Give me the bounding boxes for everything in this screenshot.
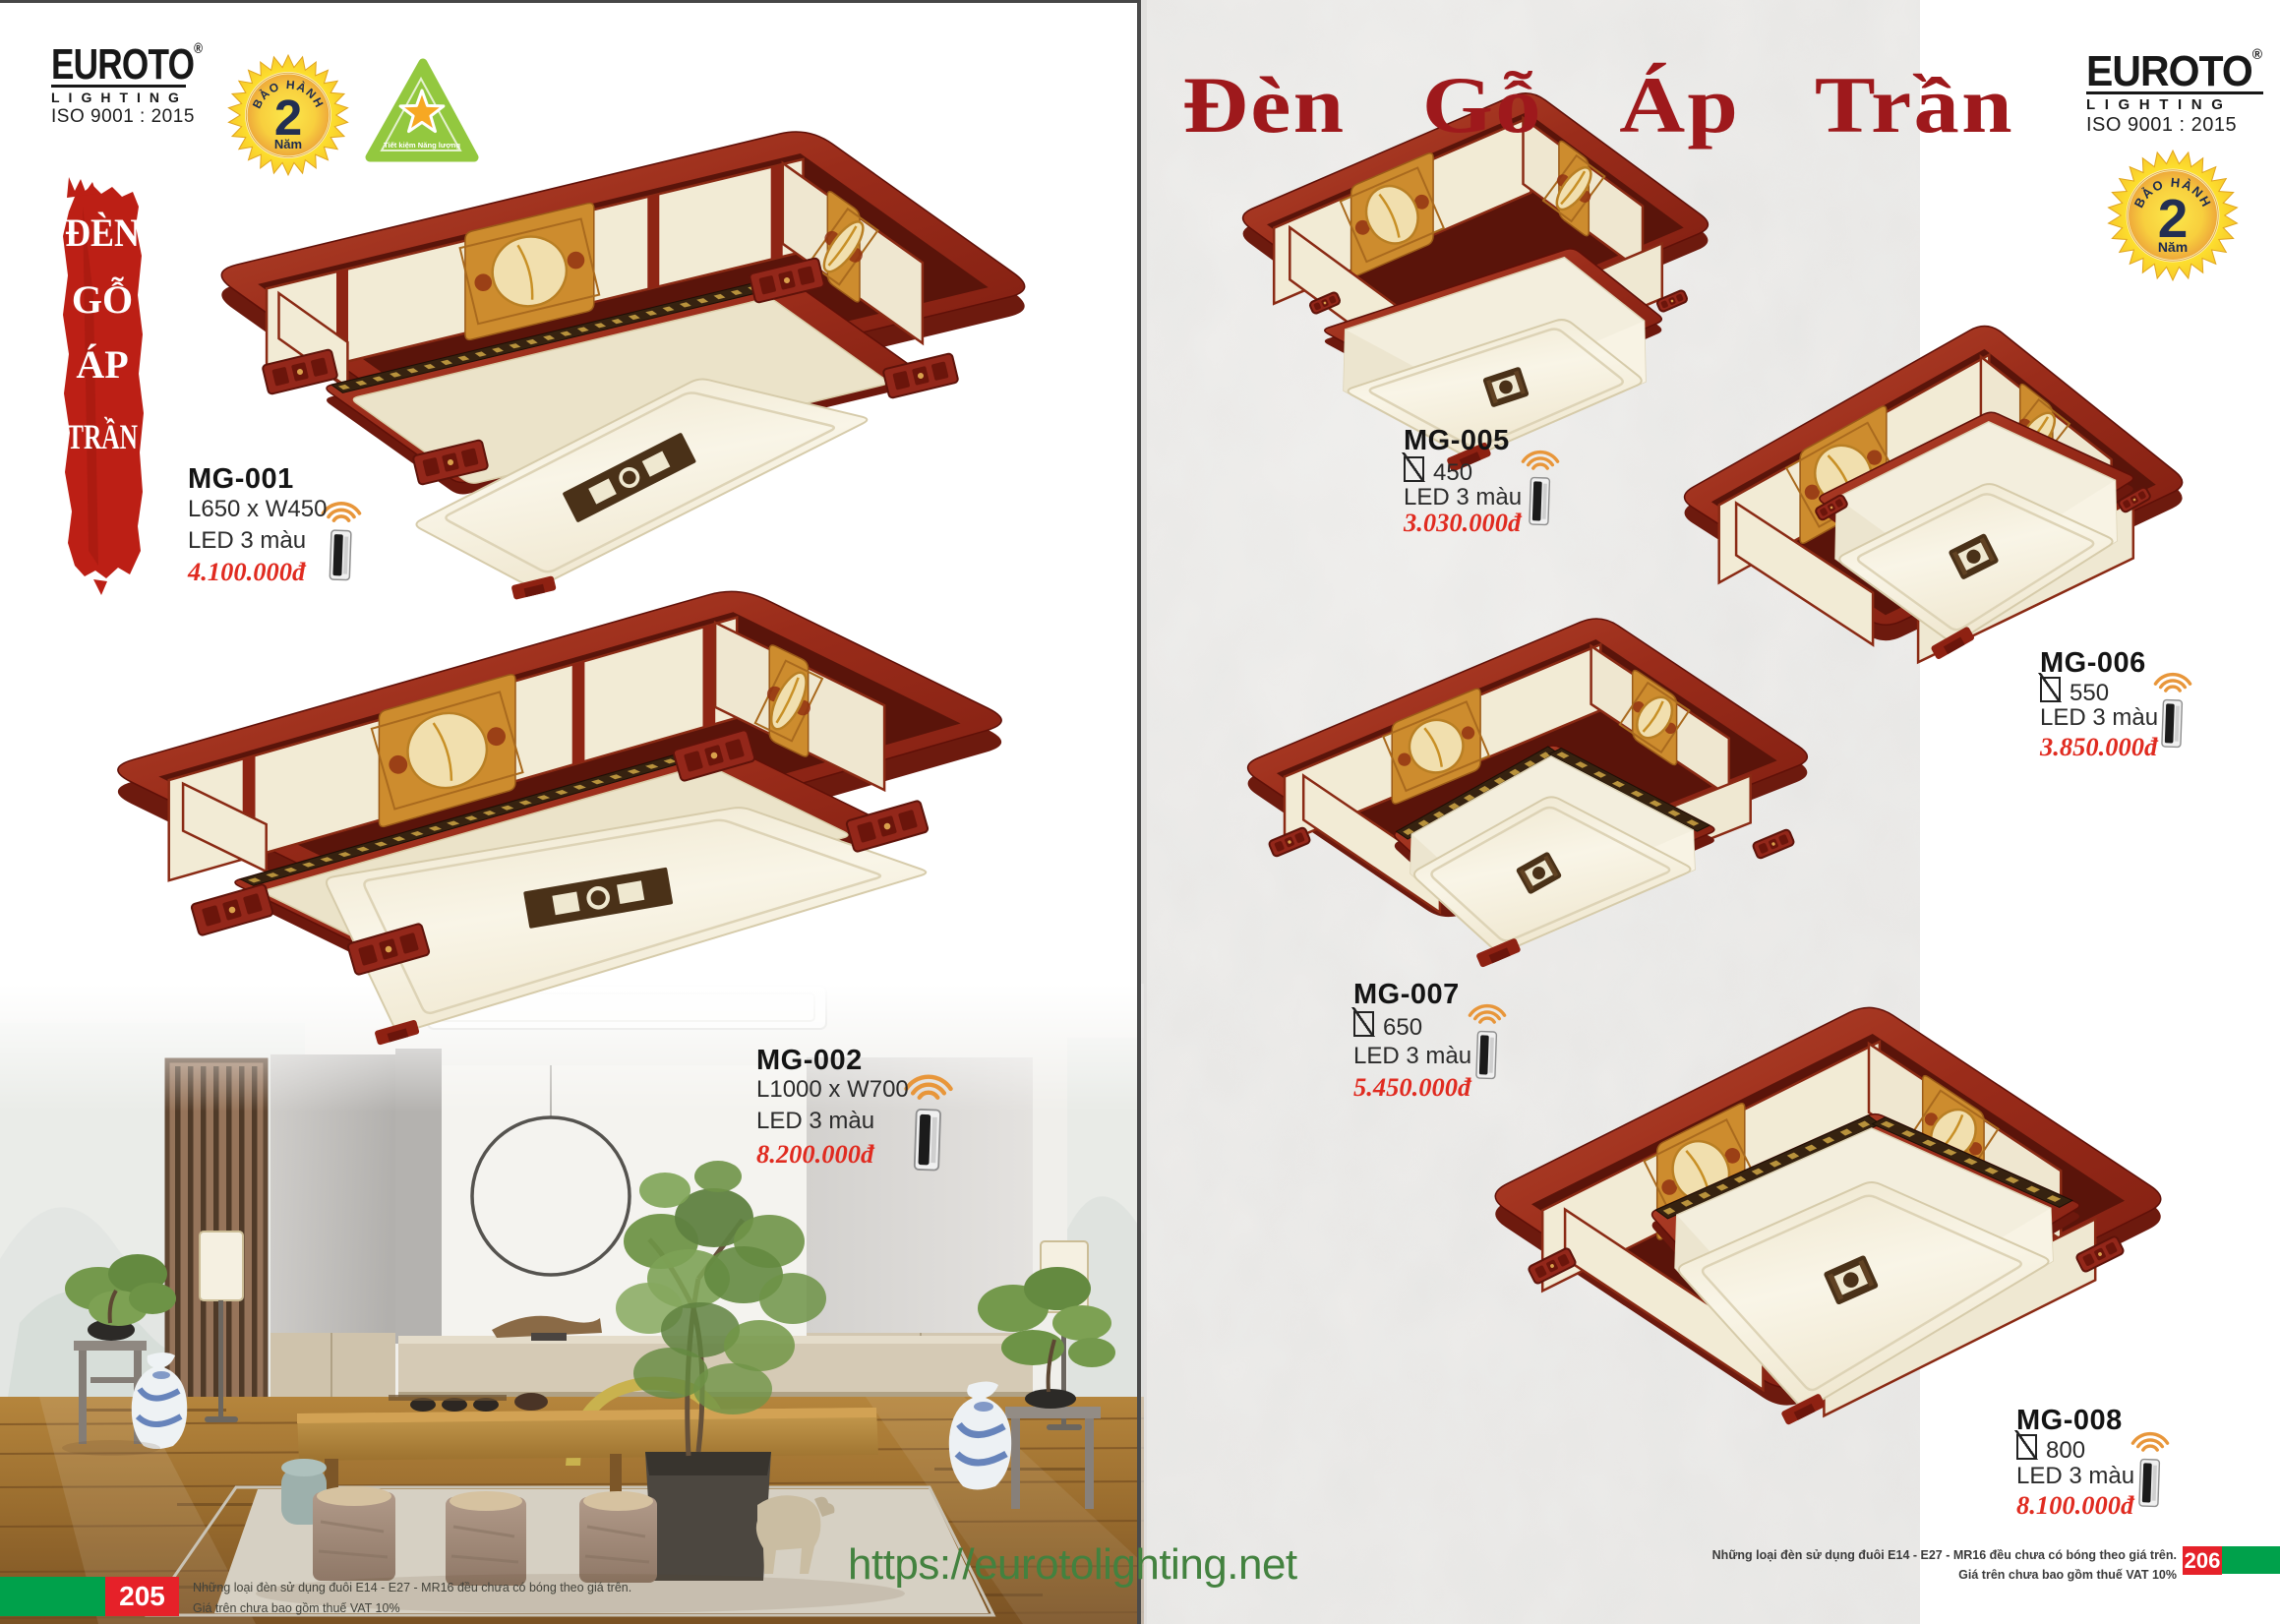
svg-text:TRẦN: TRẦN — [67, 417, 138, 456]
svg-text:ÁP: ÁP — [76, 342, 128, 387]
svg-text:Năm: Năm — [2158, 239, 2188, 255]
svg-text:ĐÈN: ĐÈN — [65, 211, 140, 255]
svg-text:GỖ: GỖ — [72, 276, 133, 322]
svg-text:Tiết kiệm Năng lượng: Tiết kiệm Năng lượng — [384, 142, 460, 150]
svg-text:Năm: Năm — [274, 137, 302, 151]
